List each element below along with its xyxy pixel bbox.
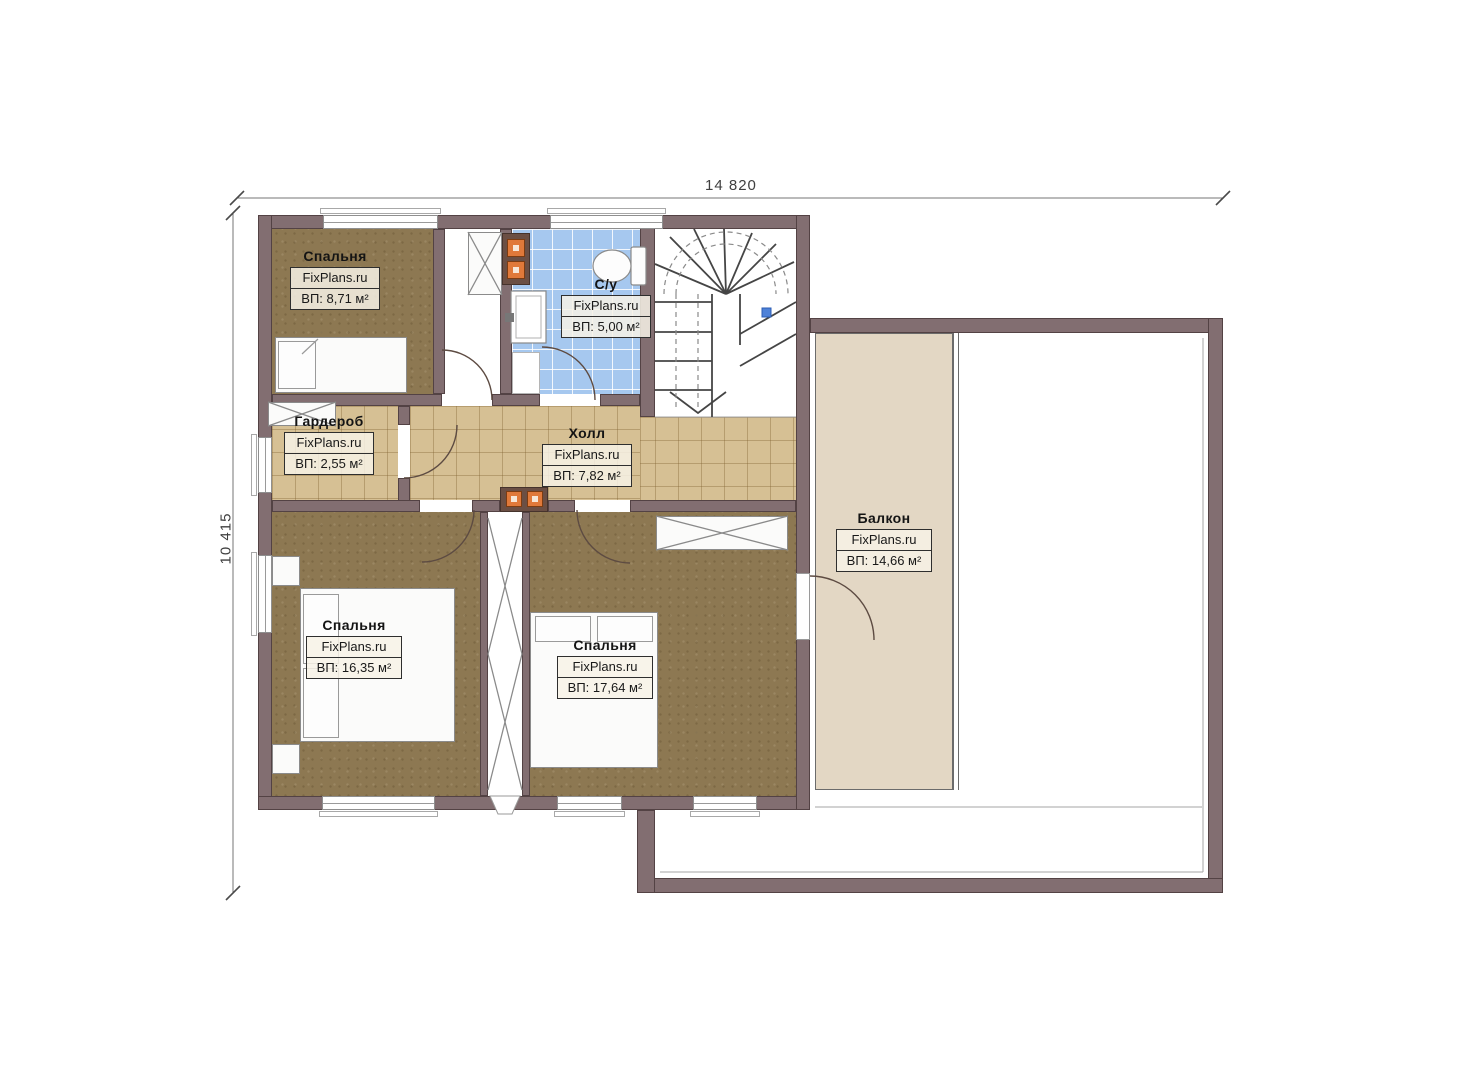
floor-hall [655, 417, 796, 500]
wall-segment [796, 215, 810, 810]
door-opening [540, 394, 600, 406]
wall-segment [433, 229, 445, 394]
dimension-width-label: 14 820 [705, 177, 757, 194]
chimney-flue-icon [506, 491, 522, 507]
window [557, 796, 622, 810]
balcony-railing [953, 333, 959, 790]
watermark: FixPlans.ru [837, 530, 931, 550]
window [693, 796, 757, 810]
wardrobe-icon [656, 516, 788, 550]
floor-plan-canvas: 14 820 10 415 Спальня FixPlans.ru ВП: 8,… [0, 0, 1474, 1080]
room-name: Спальня [303, 248, 366, 264]
room-name: Спальня [573, 637, 636, 653]
window-sill [251, 434, 257, 496]
watermark: FixPlans.ru [562, 296, 650, 316]
window-sill [547, 208, 666, 214]
room-label-wardrobe: Гардероб FixPlans.ru ВП: 2,55 м² [279, 413, 379, 475]
wall-segment [492, 394, 540, 406]
window [550, 215, 663, 229]
room-name: Холл [569, 425, 606, 441]
door-opening [575, 500, 630, 512]
wall-segment [810, 318, 1223, 333]
room-name: Спальня [322, 617, 385, 633]
balcony-door-opening [796, 573, 810, 640]
window-sill [251, 552, 257, 636]
room-area: ВП: 14,66 м² [837, 550, 931, 571]
window-sill [690, 811, 760, 817]
window-sill [320, 208, 441, 214]
room-label-bedroom-left: Спальня FixPlans.ru ВП: 16,35 м² [304, 617, 404, 679]
shaft-column [488, 512, 522, 796]
room-area: ВП: 17,64 м² [558, 677, 652, 698]
nightstand-icon [272, 744, 300, 774]
wall-segment [630, 500, 796, 512]
wall-segment [480, 512, 488, 796]
floor-stair-room [655, 229, 796, 417]
room-label-bathroom: С/у FixPlans.ru ВП: 5,00 м² [556, 276, 656, 338]
wall-segment [272, 500, 420, 512]
dimension-height-label: 10 415 [217, 513, 234, 565]
watermark: FixPlans.ru [285, 433, 373, 453]
chimney-flue-icon [507, 261, 525, 279]
window [322, 796, 435, 810]
wall-segment [548, 500, 575, 512]
door-opening [420, 500, 472, 512]
room-area: ВП: 2,55 м² [285, 453, 373, 474]
room-label-bedroom-right: Спальня FixPlans.ru ВП: 17,64 м² [555, 637, 655, 699]
wall-segment [472, 500, 500, 512]
watermark: FixPlans.ru [291, 268, 379, 288]
watermark: FixPlans.ru [543, 445, 631, 465]
window-sill [554, 811, 625, 817]
window [258, 437, 272, 493]
watermark: FixPlans.ru [558, 657, 652, 677]
floor-hall [640, 417, 655, 500]
room-label-bedroom-top: Спальня FixPlans.ru ВП: 8,71 м² [285, 248, 385, 310]
wardrobe-icon [468, 232, 502, 295]
wall-segment [522, 512, 530, 796]
wall-segment [637, 810, 655, 893]
room-label-hall: Холл FixPlans.ru ВП: 7,82 м² [537, 425, 637, 487]
wall-segment [600, 394, 640, 406]
room-area: ВП: 16,35 м² [307, 657, 401, 678]
wall-segment [1208, 318, 1223, 893]
wall-segment [637, 878, 1223, 893]
pillow-icon [278, 341, 316, 389]
room-name: Гардероб [294, 413, 363, 429]
room-area: ВП: 8,71 м² [291, 288, 379, 309]
door-opening [398, 425, 410, 478]
room-label-balcony: Балкон FixPlans.ru ВП: 14,66 м² [834, 510, 934, 572]
wall-segment [398, 406, 410, 425]
room-name: С/у [595, 276, 618, 292]
window-sill [319, 811, 438, 817]
wall-segment [258, 215, 272, 810]
room-area: ВП: 7,82 м² [543, 465, 631, 486]
chimney-flue-icon [507, 239, 525, 257]
watermark: FixPlans.ru [307, 637, 401, 657]
window [258, 555, 272, 633]
room-area: ВП: 5,00 м² [562, 316, 650, 337]
room-name: Балкон [858, 510, 911, 526]
door-opening [442, 394, 492, 406]
chimney-flue-icon [527, 491, 543, 507]
shower-mat [512, 352, 540, 394]
window [323, 215, 438, 229]
nightstand-icon [272, 556, 300, 586]
